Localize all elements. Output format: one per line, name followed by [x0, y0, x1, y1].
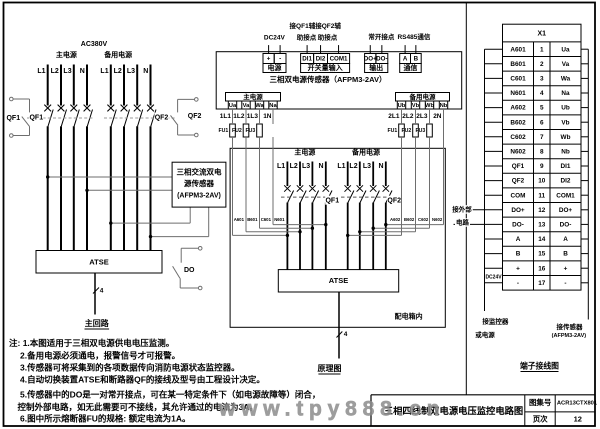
svg-text:电路: 电路 — [456, 218, 470, 227]
svg-text:C601: C601 — [261, 217, 272, 222]
svg-text:L1: L1 — [100, 68, 108, 75]
svg-text:DO: DO — [184, 267, 195, 274]
svg-text:FU1: FU1 — [218, 128, 228, 134]
svg-text:ATSE: ATSE — [89, 257, 108, 266]
svg-text:+: + — [564, 265, 568, 272]
svg-text:源传感器: 源传感器 — [184, 178, 214, 188]
svg-text:接外部: 接外部 — [452, 205, 472, 214]
svg-text:A: A — [563, 236, 568, 243]
svg-text:5: 5 — [540, 105, 544, 112]
svg-text:6.图中所示熔断器FU的规格: 额定电流为1A。: 6.图中所示熔断器FU的规格: 额定电流为1A。 — [20, 413, 190, 423]
svg-text:2L2: 2L2 — [402, 113, 414, 120]
svg-text:(AFPM3-2AV): (AFPM3-2AV) — [552, 333, 587, 339]
svg-text:A602: A602 — [390, 217, 401, 222]
svg-text:A: A — [516, 236, 521, 243]
svg-text:Ub: Ub — [398, 103, 406, 109]
svg-text:COM1: COM1 — [556, 192, 575, 199]
svg-text:L2: L2 — [114, 68, 122, 75]
svg-text:FU1: FU1 — [387, 128, 397, 134]
svg-text:Vb: Vb — [412, 103, 420, 109]
svg-text:DI2: DI2 — [316, 56, 326, 63]
svg-text:2.备用电源必须通电，报警信号才可报警。: 2.备用电源必须通电，报警信号才可报警。 — [20, 350, 180, 360]
svg-text:3.传感器可将采集到的各项数据传向消防电源状态监控器。: 3.传感器可将采集到的各项数据传向消防电源状态监控器。 — [20, 362, 240, 372]
svg-text:QF1: QF1 — [325, 197, 339, 204]
svg-text:17: 17 — [538, 280, 546, 287]
svg-text:1L1: 1L1 — [220, 113, 232, 120]
svg-text:4: 4 — [540, 90, 544, 97]
svg-text:A602: A602 — [510, 105, 526, 112]
svg-text:N601: N601 — [510, 90, 526, 97]
svg-text:L2: L2 — [51, 68, 59, 75]
svg-text:C602: C602 — [418, 217, 429, 222]
svg-text:B601: B601 — [247, 217, 258, 222]
svg-text:L1: L1 — [337, 163, 345, 170]
svg-text:QF2: QF2 — [188, 113, 202, 120]
svg-text:-: - — [279, 56, 281, 63]
svg-text:AC380V: AC380V — [81, 41, 108, 48]
svg-text:L3: L3 — [63, 68, 71, 75]
svg-text:X1: X1 — [537, 30, 546, 37]
svg-text:3: 3 — [540, 75, 544, 82]
svg-text:常开接点: 常开接点 — [368, 32, 395, 41]
svg-text:B: B — [563, 251, 568, 258]
svg-text:16: 16 — [538, 265, 546, 272]
svg-text:助接点: 助接点 — [318, 33, 338, 42]
svg-text:2N: 2N — [433, 113, 442, 120]
svg-text:B: B — [516, 251, 521, 258]
svg-text:www.tpy888.cn: www.tpy888.cn — [218, 398, 445, 421]
svg-text:L1: L1 — [277, 163, 285, 170]
svg-text:输出: 输出 — [369, 63, 383, 72]
svg-text:ACR13CTX801: ACR13CTX801 — [557, 401, 598, 407]
svg-text:原理图: 原理图 — [318, 364, 342, 373]
svg-text:+: + — [516, 265, 520, 272]
svg-text:13: 13 — [538, 221, 546, 228]
svg-text:Va: Va — [562, 61, 570, 68]
svg-text:主电源: 主电源 — [56, 50, 77, 59]
svg-text:QF1: QF1 — [512, 163, 525, 170]
svg-text:N601: N601 — [274, 217, 285, 222]
svg-text:1: 1 — [540, 46, 544, 53]
svg-text:FU2: FU2 — [401, 128, 411, 134]
svg-text:2L1: 2L1 — [388, 113, 400, 120]
svg-text:FU3: FU3 — [245, 128, 255, 134]
svg-text:N602: N602 — [432, 217, 443, 222]
svg-text:DO-: DO- — [560, 221, 572, 228]
svg-text:Nb: Nb — [561, 148, 570, 155]
svg-text:2: 2 — [540, 61, 544, 68]
svg-text:接传感器: 接传感器 — [557, 322, 584, 331]
svg-text:-: - — [517, 280, 519, 287]
svg-text:Vb: Vb — [561, 119, 569, 126]
svg-text:DO+: DO+ — [364, 56, 377, 63]
svg-text:配电箱内: 配电箱内 — [395, 312, 423, 321]
svg-text:DI1: DI1 — [302, 56, 312, 63]
svg-text:QF1: QF1 — [29, 114, 43, 121]
svg-text:Ub: Ub — [561, 105, 570, 112]
svg-text:(AFPM3-2AV): (AFPM3-2AV) — [177, 192, 221, 199]
svg-text:Ua: Ua — [229, 103, 237, 109]
svg-text:L2: L2 — [290, 163, 298, 170]
svg-text:Ua: Ua — [561, 46, 570, 53]
svg-text:L3: L3 — [127, 68, 135, 75]
svg-text:页次: 页次 — [533, 413, 548, 423]
svg-text:备用电源: 备用电源 — [103, 50, 132, 59]
svg-text:Nb: Nb — [440, 103, 448, 109]
svg-text:9: 9 — [540, 163, 544, 170]
svg-text:Na: Na — [269, 103, 277, 109]
svg-text:N: N — [143, 68, 148, 75]
svg-text:QF1: QF1 — [6, 115, 20, 122]
svg-text:主回路: 主回路 — [85, 318, 110, 328]
svg-text:-: - — [564, 280, 566, 287]
svg-text:11: 11 — [538, 192, 545, 199]
svg-text:4: 4 — [344, 331, 348, 338]
svg-text:图集号: 图集号 — [529, 397, 552, 407]
svg-text:DO+: DO+ — [559, 207, 573, 214]
svg-text:L3: L3 — [302, 163, 310, 170]
svg-text:2L3: 2L3 — [416, 113, 428, 120]
svg-text:DI1: DI1 — [561, 163, 571, 170]
svg-text:C602: C602 — [510, 134, 526, 141]
svg-text:或电源: 或电源 — [475, 330, 495, 339]
svg-text:N: N — [379, 163, 384, 170]
svg-text:1L2: 1L2 — [233, 113, 245, 120]
svg-text:ATSE: ATSE — [329, 276, 348, 285]
svg-text:12: 12 — [574, 414, 582, 423]
svg-text:COM: COM — [511, 192, 526, 199]
svg-text:Wa: Wa — [561, 75, 571, 82]
svg-text:1L3: 1L3 — [247, 113, 259, 120]
svg-text:DC24V: DC24V — [485, 274, 502, 280]
svg-text:B: B — [414, 56, 419, 63]
svg-text:Wb: Wb — [425, 103, 434, 109]
svg-text:备用电源: 备用电源 — [351, 148, 380, 157]
svg-text:Na: Na — [561, 90, 570, 97]
svg-text:12: 12 — [538, 207, 546, 214]
svg-text:RS485通信: RS485通信 — [397, 32, 430, 41]
svg-text:三相交流双电: 三相交流双电 — [177, 166, 222, 176]
svg-text:DO-: DO- — [376, 56, 387, 63]
svg-text:L3: L3 — [363, 163, 371, 170]
svg-text:L1: L1 — [37, 68, 45, 75]
svg-text:端子接线图: 端子接线图 — [520, 361, 559, 371]
svg-text:A601: A601 — [234, 217, 245, 222]
svg-text:FU2: FU2 — [232, 128, 242, 134]
svg-text:QF2: QF2 — [387, 197, 401, 204]
svg-text:B602: B602 — [404, 217, 415, 222]
svg-text:A: A — [403, 56, 408, 63]
svg-text:6: 6 — [540, 119, 544, 126]
svg-text:Wb: Wb — [561, 134, 571, 141]
svg-text:1N: 1N — [263, 113, 272, 120]
svg-text:L2: L2 — [349, 163, 357, 170]
svg-text:FU3: FU3 — [415, 128, 425, 134]
svg-text:通信: 通信 — [403, 63, 417, 72]
svg-text:4: 4 — [100, 288, 104, 295]
svg-text:10: 10 — [538, 178, 546, 185]
svg-text:4.自动切换装置ATSE和断路器QF的接线及型号由工程设计决: 4.自动切换装置ATSE和断路器QF的接线及型号由工程设计决定。 — [20, 374, 265, 384]
svg-text:助接点: 助接点 — [297, 33, 317, 42]
svg-text:B602: B602 — [510, 119, 526, 126]
svg-text:电源: 电源 — [268, 63, 282, 72]
svg-text:8: 8 — [540, 148, 544, 155]
svg-text:7: 7 — [540, 134, 544, 141]
svg-text:N: N — [80, 68, 85, 75]
svg-text:COM1: COM1 — [330, 56, 348, 63]
svg-text:B601: B601 — [510, 61, 526, 68]
svg-text:14: 14 — [538, 236, 546, 243]
svg-text:Wa: Wa — [255, 103, 264, 109]
svg-text:接监控器: 接监控器 — [482, 317, 509, 326]
svg-text:N602: N602 — [510, 148, 526, 155]
svg-text:A601: A601 — [510, 46, 526, 53]
svg-text:Va: Va — [243, 103, 251, 109]
svg-text:QF2: QF2 — [512, 178, 525, 185]
svg-text:DI2: DI2 — [561, 178, 571, 185]
svg-text:备用电源: 备用电源 — [409, 92, 437, 101]
svg-text:接QF1辅接QF2辅: 接QF1辅接QF2辅 — [290, 21, 342, 30]
svg-text:主电源: 主电源 — [243, 92, 263, 101]
svg-text:主电源: 主电源 — [294, 148, 315, 157]
svg-text:DC24V: DC24V — [264, 35, 286, 42]
svg-text:三相双电源传感器（AFPM3-2AV）: 三相双电源传感器（AFPM3-2AV） — [270, 74, 387, 84]
svg-text:+: + — [267, 56, 271, 63]
svg-text:N: N — [319, 163, 324, 170]
svg-text:15: 15 — [538, 251, 546, 258]
svg-text:DO+: DO+ — [511, 207, 525, 214]
svg-text:C601: C601 — [510, 75, 526, 82]
svg-text:QF2: QF2 — [155, 114, 169, 121]
svg-text:DO-: DO- — [512, 221, 524, 228]
svg-text:开关量输入: 开关量输入 — [308, 63, 343, 72]
svg-text:注: 1.本图适用于三相双电源供电电压监测。: 注: 1.本图适用于三相双电源供电电压监测。 — [9, 338, 174, 348]
